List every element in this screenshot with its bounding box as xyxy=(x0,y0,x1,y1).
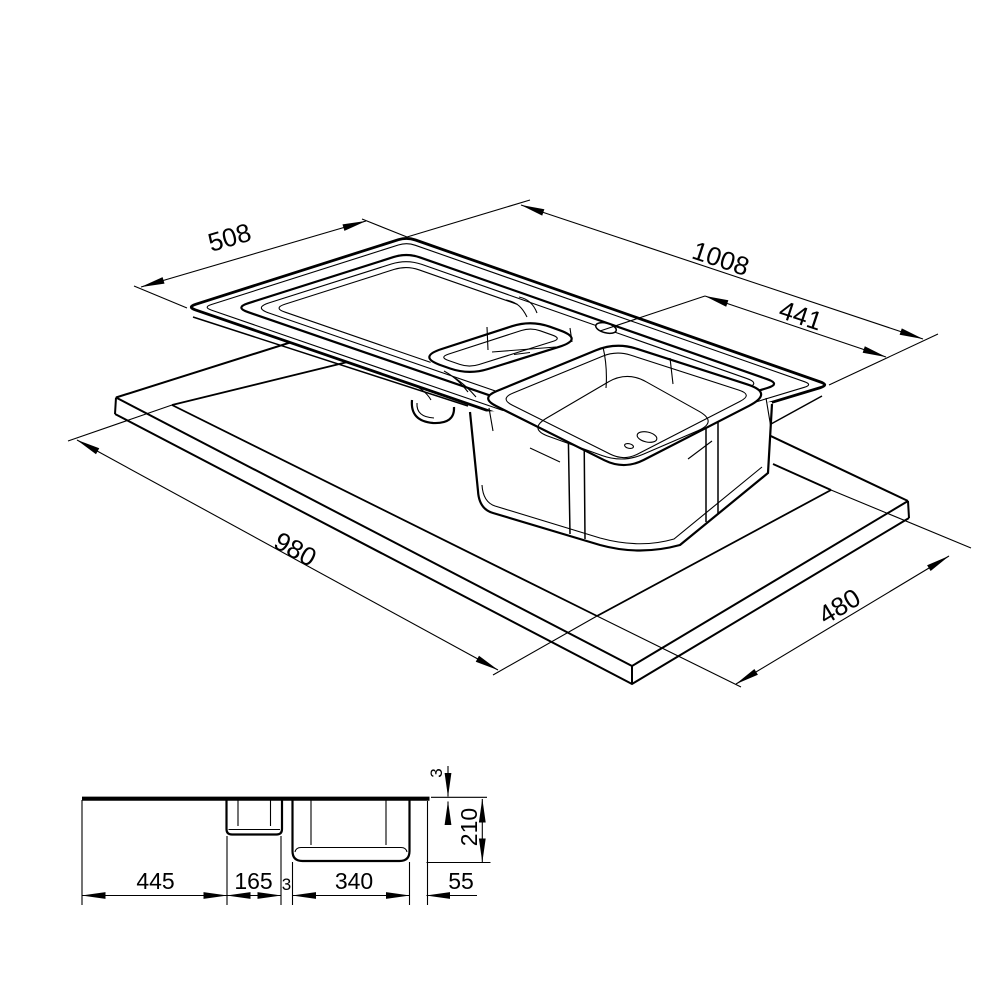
svg-text:340: 340 xyxy=(335,868,373,894)
svg-text:1008: 1008 xyxy=(689,235,753,282)
svg-text:480: 480 xyxy=(813,582,866,630)
svg-text:55: 55 xyxy=(448,868,474,894)
svg-text:980: 980 xyxy=(269,526,321,573)
svg-text:441: 441 xyxy=(776,294,827,336)
svg-text:210: 210 xyxy=(456,808,482,846)
svg-text:445: 445 xyxy=(136,868,174,894)
svg-text:3: 3 xyxy=(427,768,446,777)
svg-text:165: 165 xyxy=(234,868,272,894)
svg-text:508: 508 xyxy=(205,217,255,258)
svg-text:3: 3 xyxy=(282,875,291,894)
